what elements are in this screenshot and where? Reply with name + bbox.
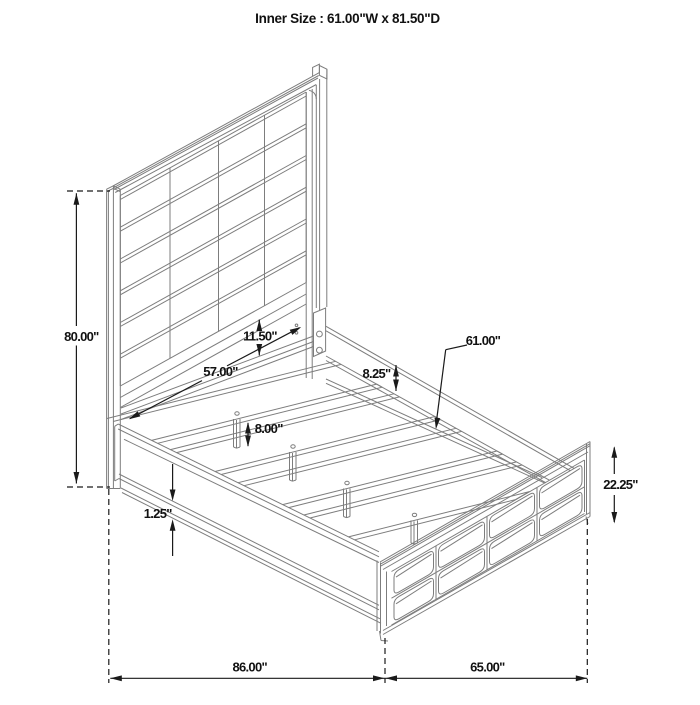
svg-text:80.00": 80.00" xyxy=(64,329,99,344)
svg-text:8.25": 8.25" xyxy=(363,366,392,381)
svg-text:86.00": 86.00" xyxy=(232,660,267,675)
svg-text:11.50": 11.50" xyxy=(243,329,277,344)
svg-text:61.00": 61.00" xyxy=(466,333,501,348)
svg-text:Inner Size : 61.00"W x 81.50"D: Inner Size : 61.00"W x 81.50"D xyxy=(255,11,440,26)
svg-text:22.25": 22.25" xyxy=(603,477,638,492)
svg-text:57.00": 57.00" xyxy=(203,364,238,379)
svg-text:65.00": 65.00" xyxy=(470,660,505,675)
svg-text:8.00": 8.00" xyxy=(255,421,284,436)
svg-text:1.25": 1.25" xyxy=(144,506,173,521)
